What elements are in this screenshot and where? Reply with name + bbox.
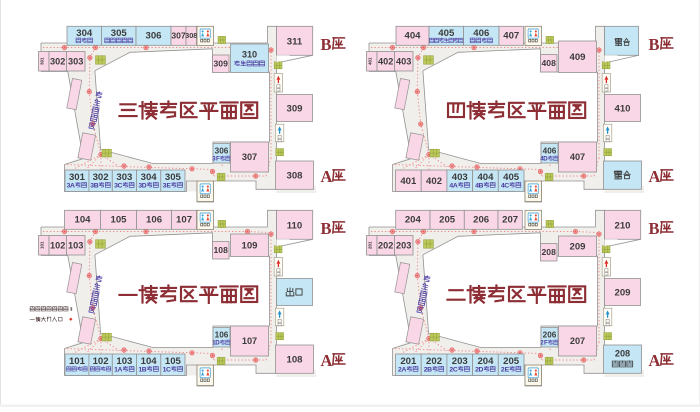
svg-text:402: 402 (426, 176, 442, 187)
svg-text:207: 207 (570, 336, 585, 346)
svg-text:4B: 4B (475, 182, 483, 189)
svg-text:3E: 3E (163, 182, 172, 189)
svg-text:402: 402 (378, 56, 393, 66)
svg-text:407: 407 (570, 152, 585, 162)
svg-text:306: 306 (215, 146, 229, 155)
svg-text:109: 109 (241, 241, 257, 252)
svg-text:308: 308 (286, 170, 303, 181)
svg-text:302: 302 (50, 56, 65, 66)
svg-text:405: 405 (438, 28, 455, 39)
svg-text:202: 202 (426, 356, 442, 367)
svg-text:110: 110 (287, 220, 302, 231)
svg-text:307: 307 (242, 152, 257, 162)
svg-text:102: 102 (50, 240, 65, 250)
svg-text:401: 401 (368, 57, 373, 65)
svg-text:309: 309 (214, 59, 229, 69)
svg-text:105: 105 (165, 356, 182, 367)
svg-text:307: 307 (171, 30, 186, 40)
svg-text:A: A (321, 351, 333, 370)
svg-text:101: 101 (40, 241, 45, 249)
svg-text:404: 404 (404, 31, 421, 42)
svg-text:406: 406 (543, 146, 557, 155)
svg-text:305: 305 (165, 172, 182, 183)
svg-text:201: 201 (400, 356, 417, 367)
svg-text:4D: 4D (540, 156, 548, 163)
svg-text:303: 303 (68, 56, 83, 66)
svg-text:209: 209 (569, 242, 585, 253)
svg-text:311: 311 (287, 36, 303, 47)
svg-text:308: 308 (185, 31, 197, 40)
svg-text:B: B (649, 35, 660, 54)
svg-text:305: 305 (111, 28, 128, 39)
svg-text:204: 204 (405, 215, 422, 226)
svg-text:3B: 3B (90, 182, 98, 189)
svg-text:B: B (649, 219, 660, 238)
svg-text:1B: 1B (138, 366, 146, 373)
svg-text:2A: 2A (398, 366, 406, 373)
svg-text:106: 106 (215, 330, 229, 339)
svg-text:3A: 3A (67, 182, 75, 189)
svg-text:301: 301 (69, 172, 86, 183)
svg-text:205: 205 (503, 356, 520, 367)
svg-text:104: 104 (74, 215, 91, 226)
svg-text:107: 107 (176, 215, 192, 226)
svg-text:407: 407 (503, 31, 519, 42)
svg-text:403: 403 (396, 56, 411, 66)
svg-text:410: 410 (614, 103, 630, 114)
svg-text:2D: 2D (475, 366, 483, 373)
svg-text:A: A (321, 167, 333, 186)
svg-text:303: 303 (116, 172, 132, 183)
svg-text:2C: 2C (449, 366, 457, 373)
svg-text:2F: 2F (540, 340, 548, 347)
svg-text:1C: 1C (163, 366, 171, 373)
svg-text:1A: 1A (114, 366, 122, 373)
svg-text:1D: 1D (212, 340, 220, 347)
svg-text:403: 403 (452, 172, 468, 183)
svg-text:4C: 4C (501, 182, 509, 189)
svg-text:101: 101 (69, 356, 86, 367)
svg-text:204: 204 (477, 356, 494, 367)
svg-text:207: 207 (502, 215, 518, 226)
svg-text:304: 304 (76, 28, 93, 39)
svg-text:B: B (321, 35, 332, 54)
svg-text:2E: 2E (501, 366, 510, 373)
svg-text:408: 408 (542, 58, 557, 68)
svg-text:106: 106 (146, 215, 162, 226)
svg-text:409: 409 (569, 52, 585, 63)
svg-text:3C: 3C (114, 182, 122, 189)
svg-text:309: 309 (286, 103, 302, 114)
svg-text:103: 103 (116, 356, 132, 367)
svg-text:203: 203 (452, 356, 468, 367)
svg-text:108: 108 (286, 354, 303, 365)
svg-text:210: 210 (614, 220, 630, 231)
svg-text:208: 208 (542, 247, 557, 257)
svg-text:208: 208 (615, 349, 630, 359)
svg-text:103: 103 (68, 240, 83, 250)
svg-text:405: 405 (503, 172, 520, 183)
svg-text:406: 406 (473, 28, 489, 39)
svg-text:B: B (321, 219, 332, 238)
svg-text:3F: 3F (212, 156, 220, 163)
svg-text:205: 205 (439, 215, 456, 226)
svg-text:102: 102 (93, 356, 109, 367)
svg-text:209: 209 (614, 287, 630, 298)
svg-text:105: 105 (110, 215, 127, 226)
svg-text:310: 310 (242, 49, 257, 59)
svg-text:304: 304 (141, 172, 158, 183)
svg-text:A: A (649, 167, 661, 186)
svg-text:201: 201 (368, 241, 373, 249)
svg-text:3D: 3D (138, 182, 146, 189)
svg-text:A: A (649, 351, 661, 370)
svg-text:2B: 2B (424, 366, 432, 373)
svg-text:306: 306 (145, 31, 161, 42)
svg-text:302: 302 (93, 172, 109, 183)
svg-text:206: 206 (473, 215, 489, 226)
svg-text:203: 203 (396, 240, 411, 250)
svg-text:108: 108 (214, 245, 229, 255)
svg-text:107: 107 (242, 336, 257, 346)
svg-text:401: 401 (400, 176, 417, 187)
svg-text:202: 202 (378, 240, 393, 250)
svg-text:4A: 4A (449, 182, 457, 189)
svg-text:104: 104 (141, 356, 158, 367)
svg-text:404: 404 (477, 172, 494, 183)
svg-text:301: 301 (40, 57, 45, 65)
svg-text:206: 206 (543, 330, 557, 339)
